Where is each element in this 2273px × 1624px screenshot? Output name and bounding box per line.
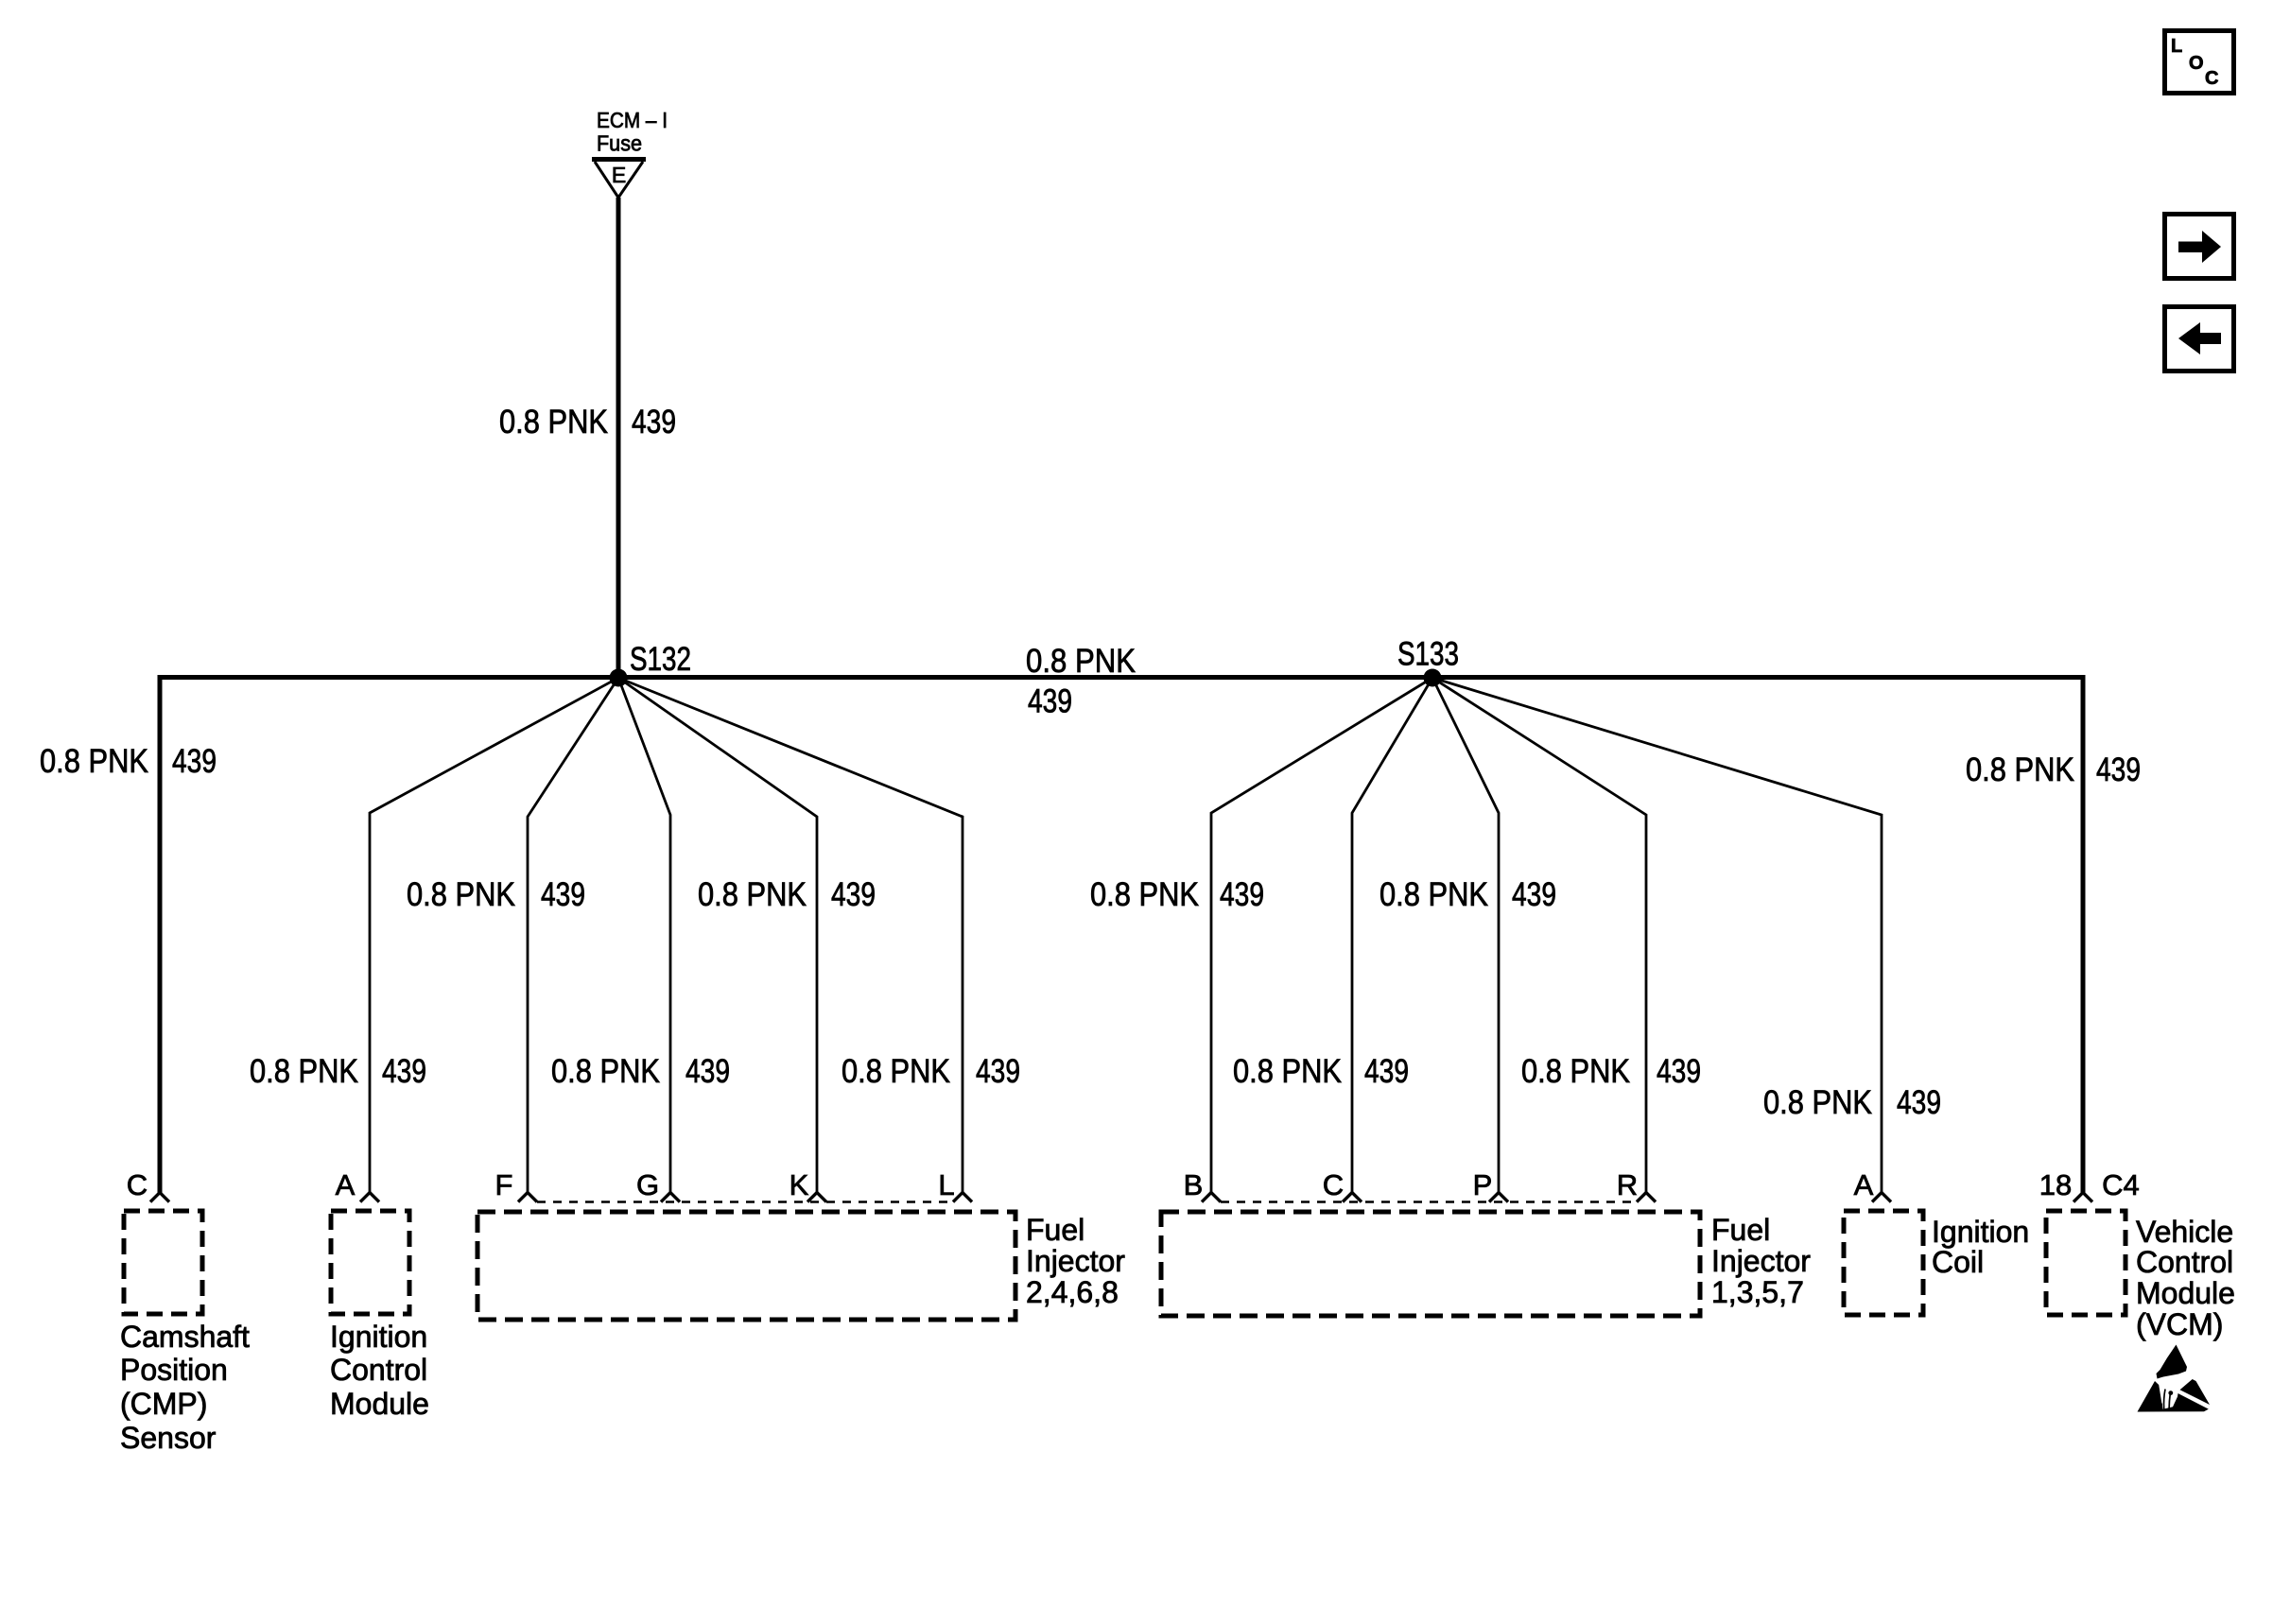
svg-text:E: E xyxy=(612,163,626,187)
svg-text:Control: Control xyxy=(2136,1245,2233,1279)
svg-text:Control: Control xyxy=(330,1353,427,1387)
svg-text:0.8 PNK: 0.8 PNK xyxy=(551,1053,660,1090)
svg-text:Camshaft: Camshaft xyxy=(120,1320,250,1354)
svg-text:C: C xyxy=(127,1168,147,1201)
svg-text:439: 439 xyxy=(541,876,585,913)
svg-text:439: 439 xyxy=(382,1053,426,1090)
svg-text:439: 439 xyxy=(831,876,876,913)
svg-text:0.8 PNK: 0.8 PNK xyxy=(842,1053,950,1090)
svg-text:S132: S132 xyxy=(630,641,691,678)
svg-text:0.8 PNK: 0.8 PNK xyxy=(1090,876,1199,913)
svg-text:S133: S133 xyxy=(1397,636,1459,673)
svg-text:439: 439 xyxy=(1364,1053,1409,1090)
svg-text:C: C xyxy=(1323,1168,1344,1201)
svg-text:0.8 PNK: 0.8 PNK xyxy=(407,876,515,913)
svg-text:Sensor: Sensor xyxy=(120,1421,217,1455)
svg-text:0.8 PNK: 0.8 PNK xyxy=(1026,643,1136,680)
svg-text:L: L xyxy=(938,1168,954,1201)
svg-text:Ignition: Ignition xyxy=(1932,1215,2029,1249)
svg-text:0.8 PNK: 0.8 PNK xyxy=(40,743,148,780)
svg-text:Module: Module xyxy=(2136,1276,2235,1310)
svg-text:439: 439 xyxy=(1897,1084,1941,1121)
svg-text:R: R xyxy=(1617,1168,1638,1201)
svg-text:C4: C4 xyxy=(2102,1168,2140,1201)
svg-text:ECM – I: ECM – I xyxy=(597,108,668,132)
svg-text:A: A xyxy=(336,1168,356,1201)
svg-text:439: 439 xyxy=(1512,876,1556,913)
svg-text:Module: Module xyxy=(330,1387,429,1421)
svg-text:0.8 PNK: 0.8 PNK xyxy=(250,1053,358,1090)
svg-text:Coil: Coil xyxy=(1932,1245,1984,1279)
svg-text:439: 439 xyxy=(632,404,676,441)
svg-text:0.8 PNK: 0.8 PNK xyxy=(1521,1053,1630,1090)
svg-text:(CMP): (CMP) xyxy=(120,1387,207,1421)
svg-text:1,3,5,7: 1,3,5,7 xyxy=(1711,1275,1804,1309)
svg-text:0.8 PNK: 0.8 PNK xyxy=(1379,876,1488,913)
svg-text:Fuel: Fuel xyxy=(1026,1213,1084,1247)
svg-text:P: P xyxy=(1473,1168,1493,1201)
svg-text:439: 439 xyxy=(685,1053,730,1090)
svg-text:0.8 PNK: 0.8 PNK xyxy=(499,404,608,441)
svg-text:0.8 PNK: 0.8 PNK xyxy=(1233,1053,1342,1090)
svg-text:18: 18 xyxy=(2039,1168,2072,1201)
svg-text:0.8 PNK: 0.8 PNK xyxy=(698,876,807,913)
svg-text:2,4,6,8: 2,4,6,8 xyxy=(1026,1275,1119,1309)
svg-text:F: F xyxy=(495,1168,513,1201)
svg-text:C: C xyxy=(2205,68,2218,89)
svg-text:Injector: Injector xyxy=(1026,1244,1125,1278)
svg-text:Fuse: Fuse xyxy=(597,131,642,156)
svg-text:439: 439 xyxy=(1657,1053,1701,1090)
svg-text:Ignition: Ignition xyxy=(330,1320,427,1354)
svg-text:Vehicle: Vehicle xyxy=(2136,1215,2233,1249)
svg-text:439: 439 xyxy=(1220,876,1264,913)
svg-text:K: K xyxy=(789,1168,809,1201)
svg-text:B: B xyxy=(1184,1168,1204,1201)
svg-text:Fuel: Fuel xyxy=(1711,1213,1770,1247)
svg-text:0.8 PNK: 0.8 PNK xyxy=(1763,1084,1872,1121)
svg-text:439: 439 xyxy=(976,1053,1020,1090)
svg-text:0.8 PNK: 0.8 PNK xyxy=(1966,752,2074,788)
svg-text:L: L xyxy=(2171,36,2182,57)
svg-text:G: G xyxy=(636,1168,659,1201)
svg-text:439: 439 xyxy=(172,743,217,780)
svg-text:439: 439 xyxy=(1028,683,1072,720)
svg-text:O: O xyxy=(2189,53,2204,74)
svg-text:Injector: Injector xyxy=(1711,1244,1811,1278)
svg-text:439: 439 xyxy=(2096,752,2141,788)
svg-text:A: A xyxy=(1854,1168,1874,1201)
svg-text:(VCM): (VCM) xyxy=(2136,1307,2223,1341)
svg-text:Position: Position xyxy=(120,1353,228,1387)
